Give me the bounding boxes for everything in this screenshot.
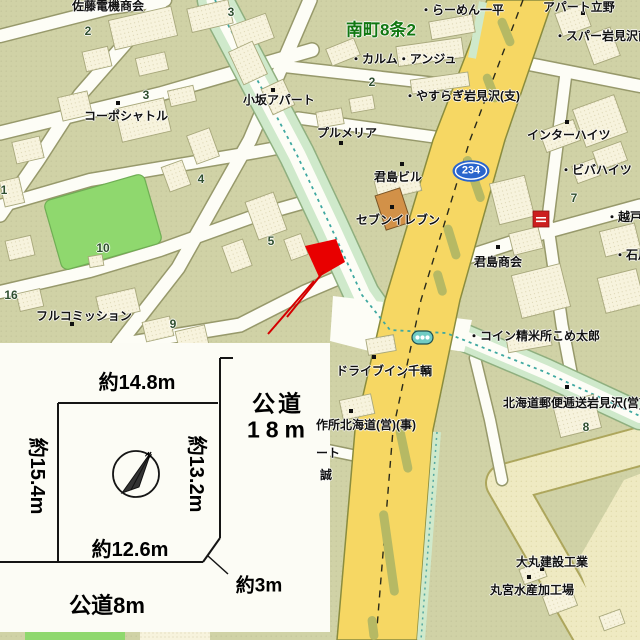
inset-panel (0, 343, 330, 632)
route-234-shield-icon (453, 160, 490, 182)
map-strip-bldg (140, 632, 210, 640)
map-geometry (0, 0, 640, 640)
red-store-logo-icon (533, 211, 549, 227)
traffic-light-icon (412, 331, 433, 344)
map-canvas[interactable]: 佐藤電機商会南町8条2・らーめん一平アパート立野・スパー岩見沢南・カルム・アンジ… (0, 0, 640, 640)
map-strip-green (25, 632, 125, 640)
